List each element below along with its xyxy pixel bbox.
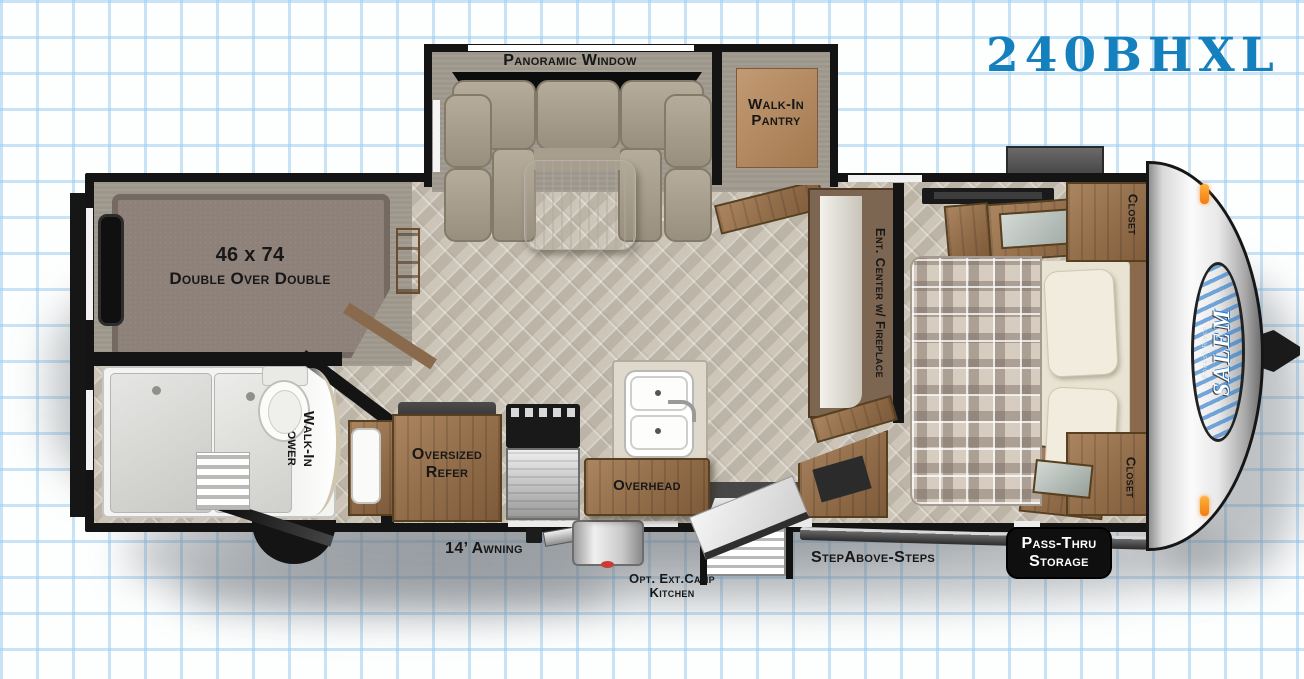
marker-light-top (1200, 184, 1209, 204)
sofa-arm-right-1 (664, 94, 712, 168)
sofa-arm-right-2 (664, 168, 712, 242)
salem-logo-text: SALEM (1209, 308, 1235, 396)
bedroom-wall (893, 183, 904, 423)
shower-drain-right (246, 392, 255, 401)
bed-overhead-left (944, 202, 993, 262)
toilet-seat (268, 390, 302, 434)
dinette-table (524, 160, 636, 250)
ent-center-label: Ent. Center w/ Fireplace (869, 193, 891, 413)
marker-light-bottom (1200, 496, 1209, 516)
range-knobs (511, 408, 575, 417)
salem-logo-subtext: Forest River (1202, 326, 1209, 378)
sofa-back-middle (536, 80, 620, 150)
bunk-type-label: Double Over Double (130, 268, 370, 290)
rear-wall-window (86, 208, 93, 320)
closet-top-label: Closet (1124, 180, 1141, 250)
sink-drain-bottom (655, 428, 661, 434)
overhead-label: Overhead (584, 474, 710, 498)
top-wall-window (848, 175, 922, 182)
sofa-arm-left-2 (444, 168, 492, 242)
camp-kitchen-label: Opt. Ext.Camp Kitchen (608, 564, 736, 608)
refer-label: Oversized Refer (392, 438, 502, 490)
refer-label-line2: Refer (426, 464, 468, 482)
salem-logo: Forest River SALEM (1191, 262, 1245, 442)
slideout-side-window (433, 100, 440, 172)
pantry-label: Walk-In Pantry (724, 90, 828, 136)
shower-drain-left (152, 386, 161, 395)
camp-kitchen-unit (572, 520, 644, 566)
pantry-label-line1: Walk-In (748, 97, 804, 114)
pass-thru-label-line2: Storage (1029, 553, 1089, 571)
model-number-title: 240BHXL (986, 28, 1280, 83)
bed-plaid-blanket (910, 256, 1042, 506)
sink-faucet (668, 400, 696, 422)
bunk-ladder (396, 228, 420, 294)
refer-label-line1: Oversized (412, 446, 482, 464)
sink-drain-top (655, 390, 661, 396)
steps-label: StepAbove-Steps (798, 545, 948, 571)
bedroom-tv-screen (934, 192, 1042, 199)
ent-center-face (820, 196, 862, 408)
ground-shadow-left (180, 555, 610, 615)
shower-label-line1: Walk-In (300, 411, 317, 467)
pantry-wall (712, 52, 722, 185)
awning-label: 14’ Awning (428, 537, 540, 561)
pass-thru-badge: Pass-Thru Storage (1006, 527, 1112, 579)
sofa-arm-left-1 (444, 94, 492, 168)
rear-wall-window-2 (86, 390, 93, 470)
camp-kitchen-label-line1: Opt. Ext.Camp (629, 572, 715, 586)
oven-front (506, 448, 580, 520)
floorplan-canvas: 240BHXL Panoramic Window Walk-In Pantry … (0, 0, 1304, 679)
pass-thru-label-line1: Pass-Thru (1022, 535, 1097, 553)
bed-dresser-glass (1032, 459, 1093, 499)
pass-thru-label: Pass-Thru Storage (1008, 529, 1110, 577)
bunk-size-label: 46 x 74 (130, 242, 370, 268)
closet-bottom-label: Closet (1122, 443, 1139, 513)
pantry-label-line2: Pantry (751, 113, 800, 130)
bed-pillow-top (1043, 268, 1118, 378)
shower-seat-slats (196, 452, 250, 510)
panoramic-window-label: Panoramic Window (438, 51, 702, 71)
bunk-window (98, 214, 124, 326)
bath-sink (351, 428, 381, 504)
camp-kitchen-label-line2: Kitchen (650, 586, 695, 600)
steps-post-right (786, 527, 793, 579)
